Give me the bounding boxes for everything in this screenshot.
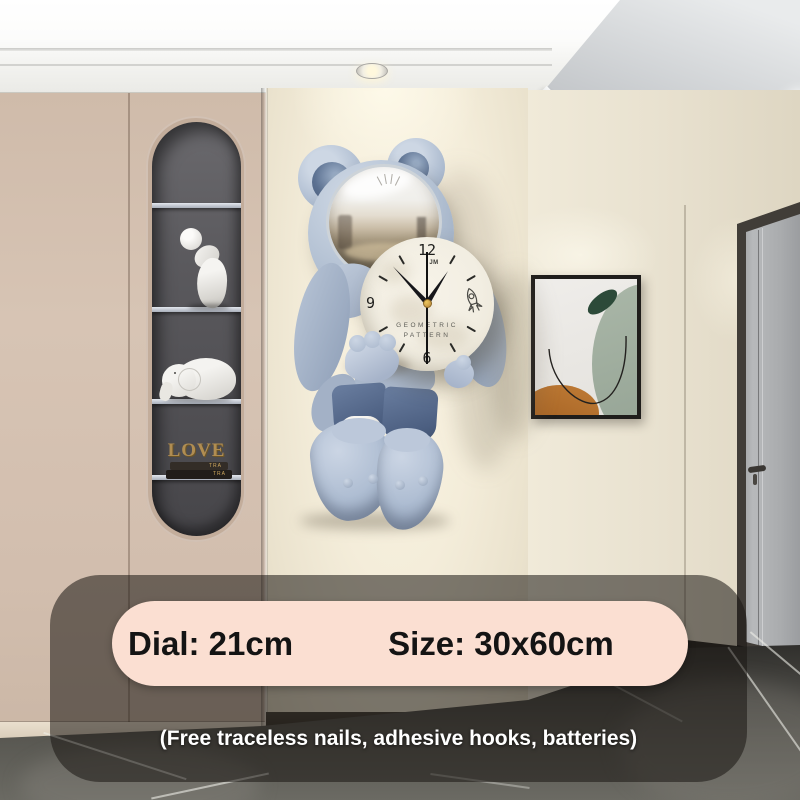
boot-cuff <box>332 418 386 444</box>
hour-tick <box>466 274 475 281</box>
figurine-shadow <box>188 304 230 310</box>
boot-knob <box>418 476 428 486</box>
product-photo-wall-clock: LOVE TRA TRA <box>0 0 800 800</box>
spec-banner: Dial: 21cm Size: 30x60cm <box>112 601 688 686</box>
clock-center-cap <box>423 299 432 308</box>
book-spine: TRA <box>166 470 232 479</box>
door-seam <box>758 230 759 645</box>
boot-knob <box>368 474 378 484</box>
figurine-bubble <box>180 228 202 250</box>
dial-shadow <box>488 270 543 440</box>
boot-cuff <box>384 428 430 452</box>
crown-molding-line <box>0 64 552 66</box>
elephant-ear <box>178 368 201 391</box>
love-letters: LOVE <box>152 440 241 462</box>
numeral-9: 9 <box>366 294 375 312</box>
dial-size-label: Dial: 21cm <box>128 625 293 663</box>
elephant-eye <box>174 372 176 374</box>
display-niche: LOVE TRA TRA <box>152 122 241 536</box>
glove-finger <box>456 355 471 370</box>
recessed-downlight <box>356 63 388 79</box>
glove-finger <box>379 334 396 351</box>
door-lock-plate <box>753 474 757 485</box>
book-spine: TRA <box>170 462 228 470</box>
door <box>733 200 800 672</box>
shelf <box>152 203 241 208</box>
freebies-caption: (Free traceless nails, adhesive hooks, b… <box>50 727 747 751</box>
visor-reflection <box>338 215 352 249</box>
crown-molding-line <box>0 48 552 51</box>
framed-abstract-art <box>531 275 641 419</box>
overall-size-label: Size: 30x60cm <box>388 625 614 663</box>
boot-knob <box>395 480 405 490</box>
second-hand <box>426 252 428 364</box>
brand-logo: JM <box>360 260 508 266</box>
boot-knob <box>343 478 353 488</box>
rocket-icon <box>457 283 489 319</box>
door-seam <box>762 228 763 646</box>
art-curve-line <box>535 279 637 415</box>
